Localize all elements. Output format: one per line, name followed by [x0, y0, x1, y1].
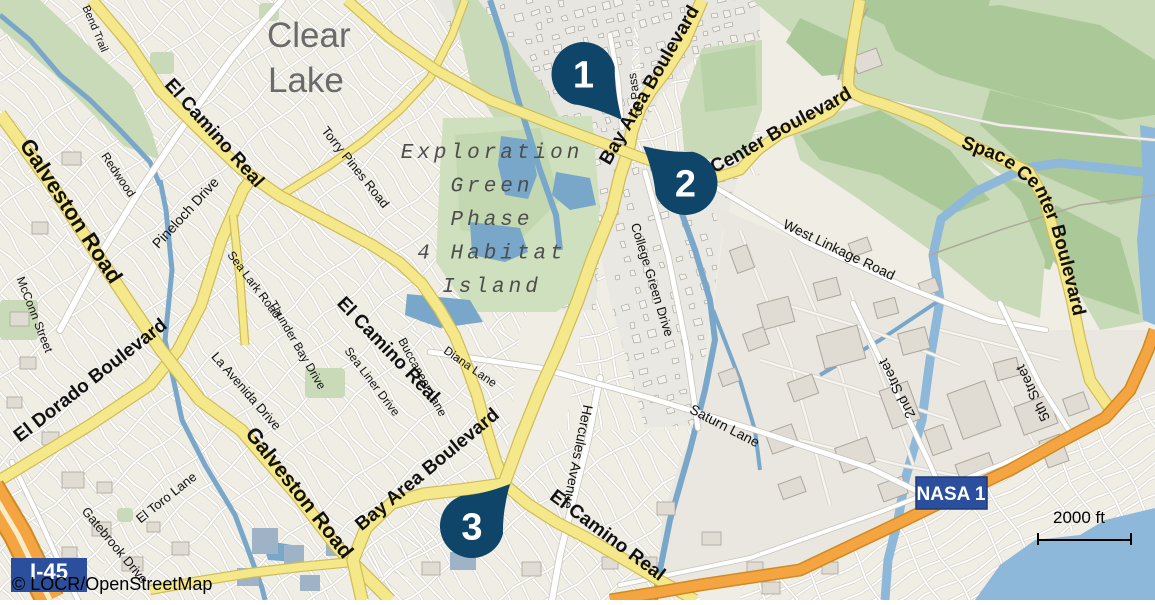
svg-text:2: 2	[675, 164, 696, 206]
svg-text:1: 1	[573, 55, 594, 97]
svg-text:Green: Green	[450, 176, 533, 199]
svg-text:4 Habitat: 4 Habitat	[417, 243, 566, 266]
svg-text:Island: Island	[442, 276, 542, 299]
svg-text:NASA 1: NASA 1	[917, 484, 986, 505]
svg-text:Phase: Phase	[450, 209, 533, 232]
svg-text:© LOCR/OpenStreetMap: © LOCR/OpenStreetMap	[12, 574, 212, 594]
svg-text:3: 3	[461, 507, 482, 549]
svg-text:Clear: Clear	[267, 16, 351, 55]
svg-text:2000 ft: 2000 ft	[1053, 508, 1105, 527]
svg-text:Lake: Lake	[268, 61, 344, 100]
svg-text:Exploration: Exploration	[401, 142, 584, 165]
